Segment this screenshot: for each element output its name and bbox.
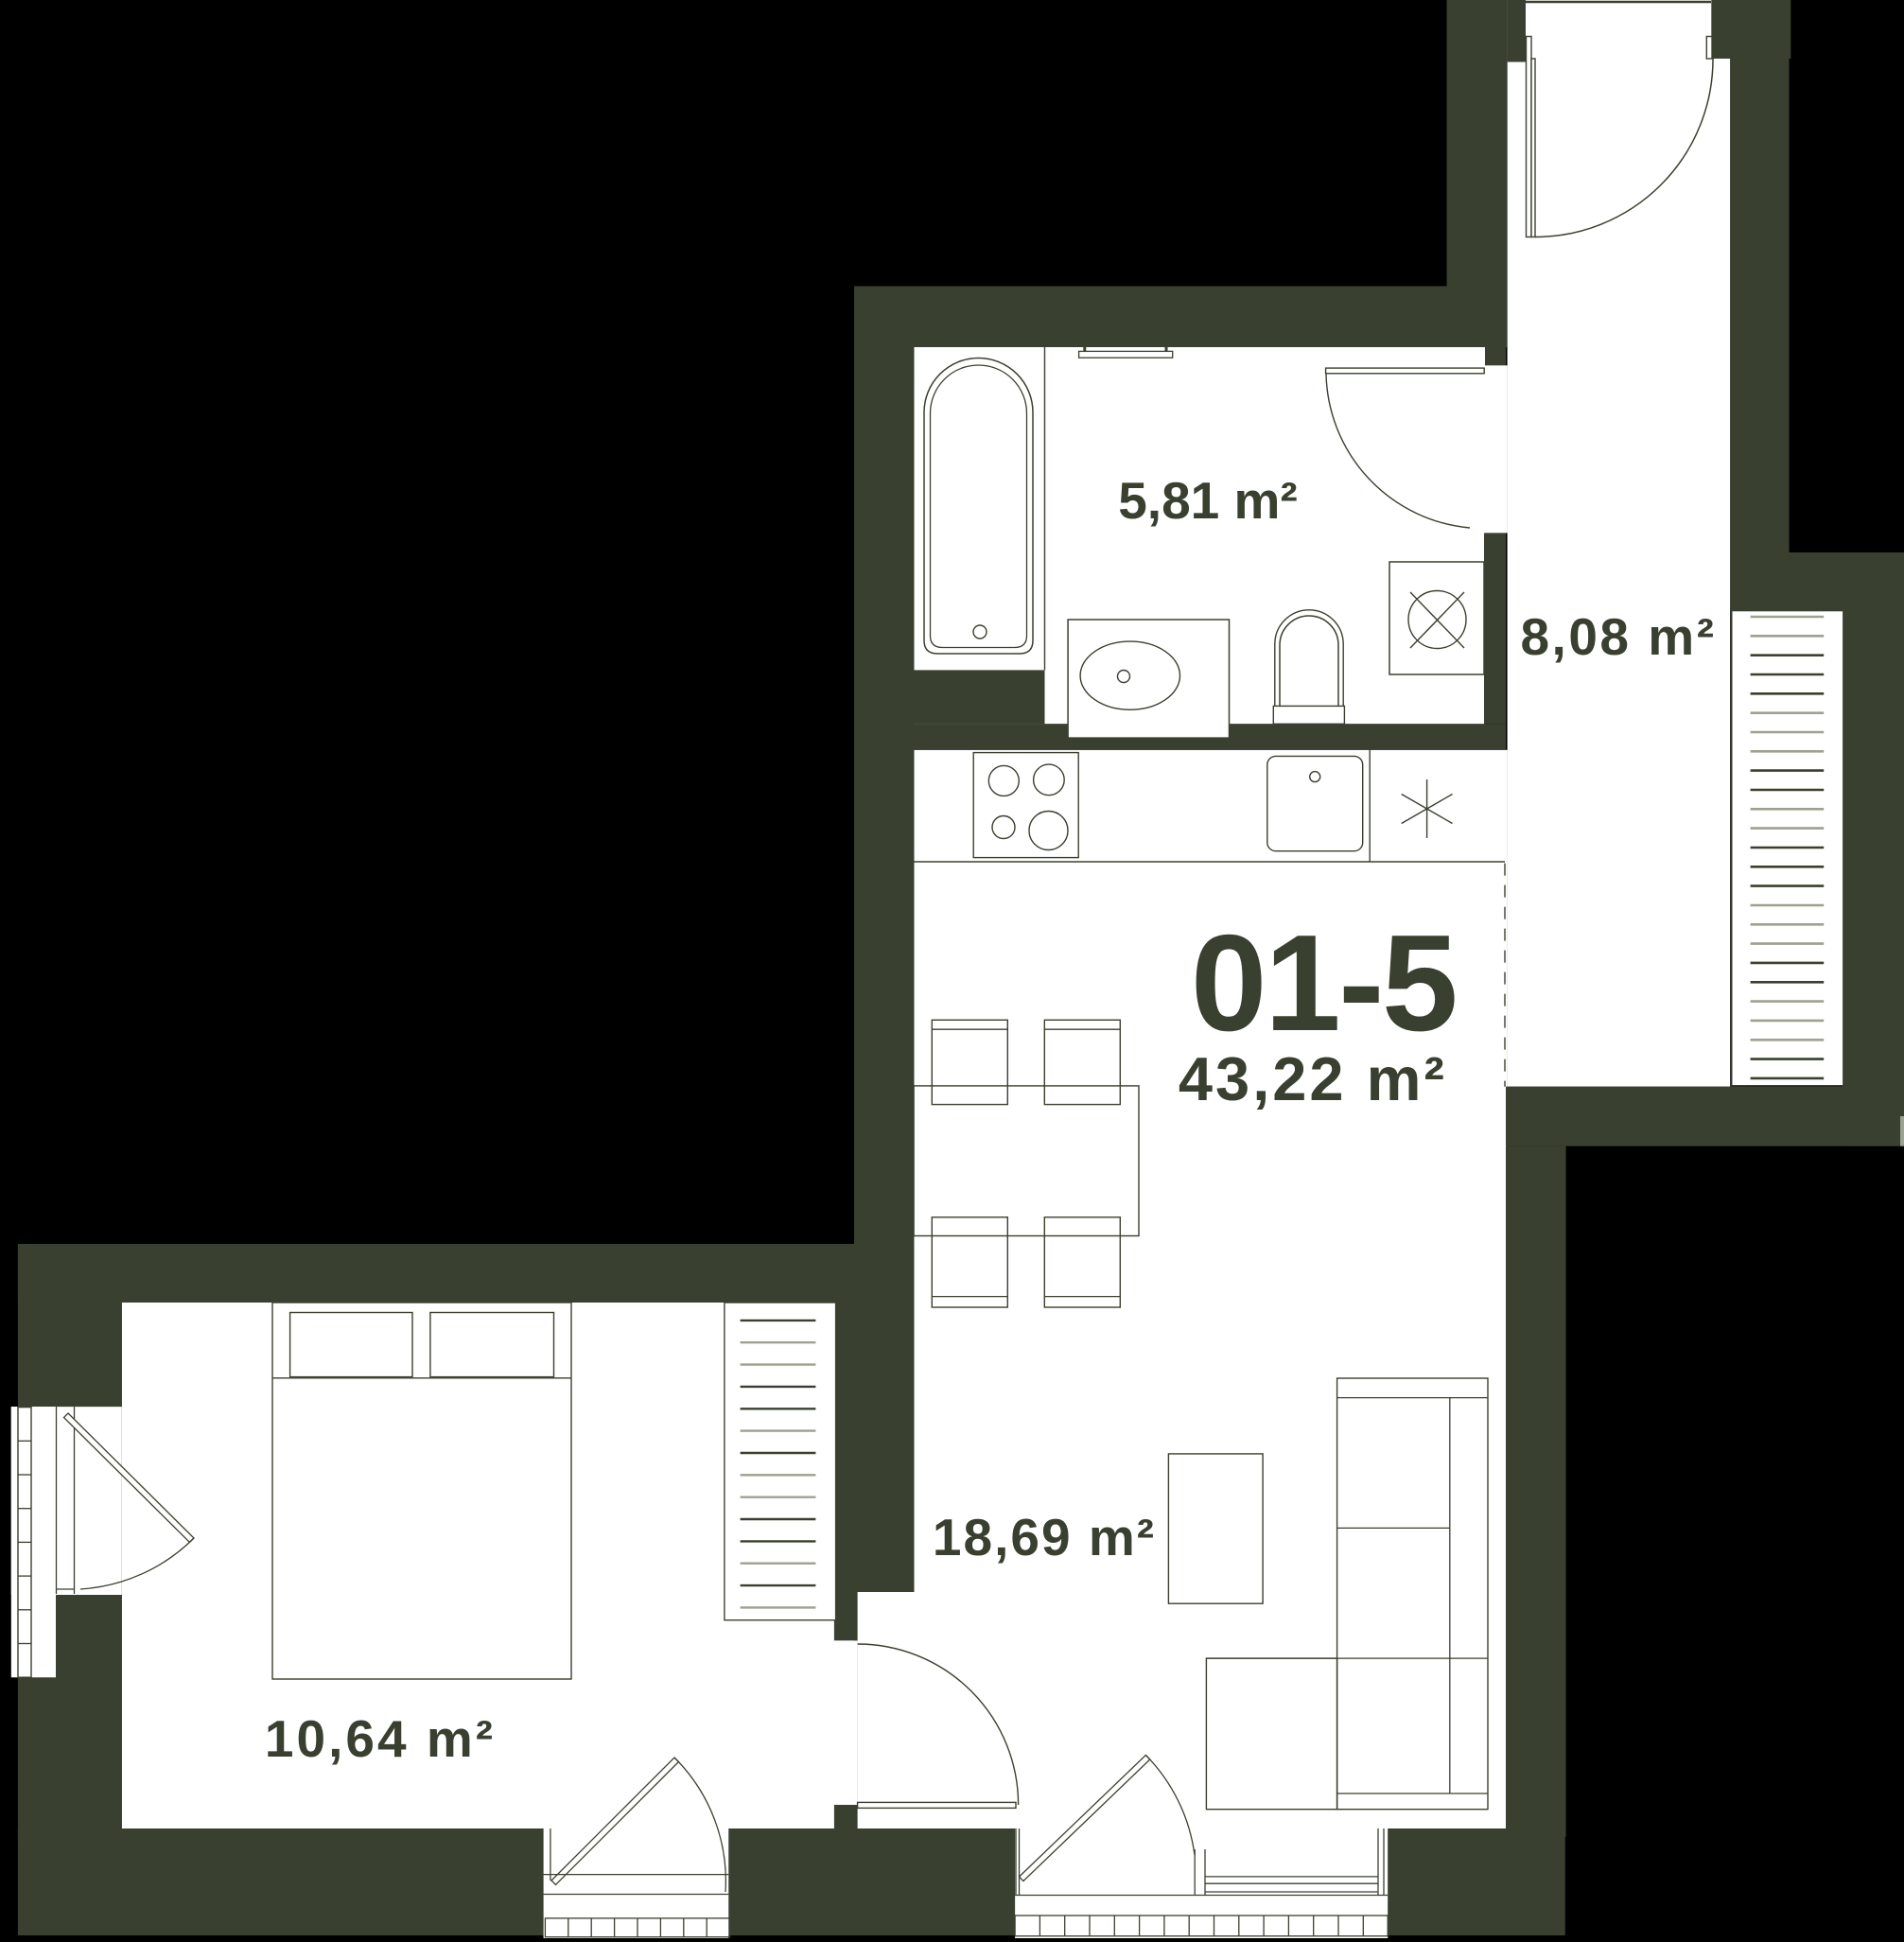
svg-text:5,81 m²: 5,81 m² <box>1118 471 1298 530</box>
svg-text:43,22 m²: 43,22 m² <box>1179 1044 1447 1113</box>
svg-text:10,64 m²: 10,64 m² <box>265 1709 496 1768</box>
svg-text:18,69 m²: 18,69 m² <box>933 1508 1156 1566</box>
svg-text:8,08 m²: 8,08 m² <box>1520 607 1716 666</box>
svg-text:01-5: 01-5 <box>1191 906 1456 1059</box>
